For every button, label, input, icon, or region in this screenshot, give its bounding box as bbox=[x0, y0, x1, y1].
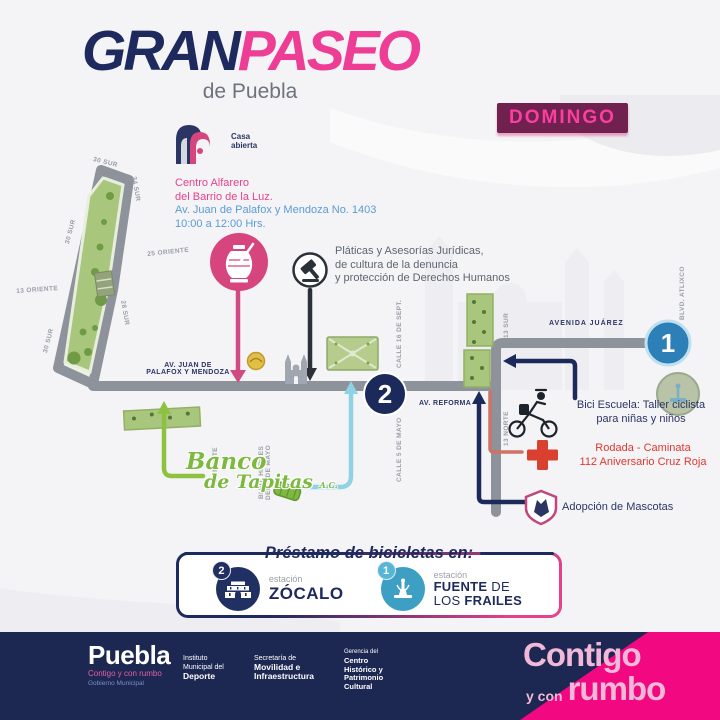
zocalo-square bbox=[327, 337, 378, 370]
footer-slogan: Contigo y con rumbo bbox=[523, 636, 665, 708]
park-strip-13sur bbox=[464, 294, 493, 387]
station-zocalo: 2 estación ZÓCALO bbox=[216, 567, 344, 611]
street-palafox: AV. JUAN DE PALAFOX Y MENDOZA bbox=[142, 362, 234, 376]
street-13-norte: 13 NORTE bbox=[503, 411, 510, 446]
note-adopcion-mascotas: Adopción de Mascotas bbox=[562, 501, 673, 515]
street-calle-5-mayo: CALLE 5 DE MAYO bbox=[396, 417, 403, 482]
street-blvd-atlixco: BLVD. ATLIXCO bbox=[679, 266, 686, 320]
venue-info: Centro Alfarero del Barrio de la Luz. Av… bbox=[175, 177, 376, 231]
title-subtitle: de Puebla bbox=[30, 80, 470, 104]
station-label: estación bbox=[269, 574, 344, 584]
svg-text:1: 1 bbox=[661, 328, 675, 358]
note-cruz-roja: Rodada - Caminata 112 Aniversario Cruz R… bbox=[568, 442, 718, 469]
footer-bar: Puebla Contigo y con rumbo Gobierno Muni… bbox=[0, 632, 720, 720]
note-bici-escuela: Bici Escuela: Taller ciclista para niñas… bbox=[566, 399, 716, 426]
church-icon bbox=[285, 354, 307, 384]
bike-loan-title: Préstamo de bicicletas en: bbox=[265, 544, 473, 563]
venue-address: Av. Juan de Palafox y Mendoza No. 1403 bbox=[175, 204, 376, 218]
station-zocalo-badge: 2 bbox=[212, 561, 231, 580]
station-fuente-badge: 1 bbox=[377, 561, 396, 580]
venue-name-1: Centro Alfarero bbox=[175, 177, 376, 191]
casa-abierta-icon bbox=[176, 125, 210, 164]
day-badge: DOMINGO bbox=[497, 103, 628, 133]
pet-shield-icon bbox=[526, 491, 556, 524]
street-av-reforma: AV. REFORMA bbox=[419, 400, 471, 407]
street-avenida-juarez: AVENIDA JUÁREZ bbox=[549, 320, 624, 327]
station-zocalo-name: ZÓCALO bbox=[269, 584, 344, 604]
park-building bbox=[94, 271, 114, 297]
talavera-icon bbox=[248, 353, 265, 370]
event-poster: 2 1 GRANPASEO de Puebla DOMINGO bbox=[0, 0, 720, 720]
title-paseo: PASEO bbox=[238, 19, 418, 83]
station-fuente-icon: 1 bbox=[381, 567, 425, 611]
street-calle-16-sept: CALLE 16 DE SEPT. bbox=[396, 300, 403, 368]
svg-text:2: 2 bbox=[378, 379, 392, 409]
gavel-icon bbox=[294, 254, 327, 287]
org-deporte: Instituto Municipal del Deporte bbox=[183, 654, 224, 681]
palace-icon bbox=[224, 579, 252, 599]
org-centro-historico: Gerencia del Centro Histórico y Patrimon… bbox=[344, 648, 383, 691]
venue-name-2: del Barrio de la Luz. bbox=[175, 191, 376, 205]
cyclist-icon bbox=[510, 390, 557, 437]
station-fuente-name: FUENTE DE bbox=[434, 580, 523, 594]
casa-abierta-label: Casa abierta bbox=[231, 132, 257, 150]
red-cross-icon bbox=[527, 440, 558, 470]
org-movilidad: Secretaría de Movilidad e Infraestructur… bbox=[254, 654, 314, 681]
note-juridicas: Pláticas y Asesorías Jurídicas, de cultu… bbox=[335, 245, 570, 286]
fountain-icon bbox=[391, 577, 415, 601]
banco-de-tapitas-logo: Banco de Tapitas A.C. bbox=[186, 452, 338, 495]
route-marker-2: 2 bbox=[364, 373, 406, 415]
page-title: GRANPASEO bbox=[30, 18, 470, 84]
station-fuente-frailes: 1 estación FUENTE DE LOS FRAILES bbox=[381, 567, 523, 611]
title-gran: GRAN bbox=[82, 19, 238, 83]
bike-loan-panel: 2 estación ZÓCALO bbox=[176, 542, 562, 622]
station-zocalo-icon: 2 bbox=[216, 567, 260, 611]
venue-hours: 10:00 a 12:00 Hrs. bbox=[175, 218, 376, 232]
route-marker-1: 1 bbox=[646, 321, 690, 365]
street-13-sur: 13 SUR bbox=[503, 313, 510, 338]
puebla-logo: Puebla Contigo y con rumbo Gobierno Muni… bbox=[88, 642, 170, 687]
bike-loan-title-row: Préstamo de bicicletas en: bbox=[184, 544, 554, 563]
pottery-icon bbox=[210, 233, 268, 291]
